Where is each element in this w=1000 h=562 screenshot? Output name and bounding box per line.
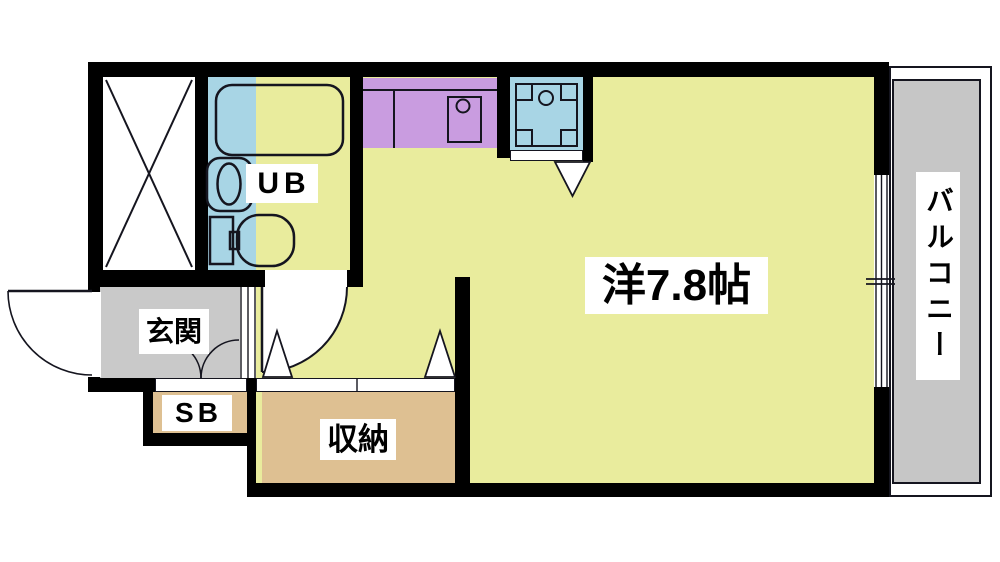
kitchen-counter — [363, 78, 497, 148]
balcony-label: バルコニー — [916, 172, 960, 380]
entrance-door-opening — [88, 292, 101, 377]
wall-storage-right — [455, 277, 470, 497]
entrance-door-swing-icon — [8, 291, 92, 375]
entrance-step-strip — [240, 287, 256, 378]
washing-machine-alcove — [510, 77, 583, 150]
wall-ub-right — [350, 77, 363, 287]
entrance-label: 玄関 — [139, 309, 209, 354]
wall-kitchen-right — [497, 77, 510, 158]
storage-door-track — [256, 378, 455, 392]
storage-label: 収納 — [320, 419, 396, 460]
shoe-box-label: SB — [162, 395, 232, 431]
wall-washer-right — [583, 77, 593, 162]
main-room-label: 洋7.8帖 — [585, 257, 768, 314]
void-x-box — [103, 77, 195, 270]
unit-bath-label: UB — [246, 164, 318, 203]
washer-door-track — [510, 150, 583, 161]
balcony-window-opening — [874, 175, 889, 387]
floor-plan-canvas: UB 玄関 SB 収納 洋7.8帖 バルコニー — [0, 0, 1000, 562]
ub-door-opening — [265, 270, 347, 287]
shoe-box-opening — [155, 378, 247, 392]
